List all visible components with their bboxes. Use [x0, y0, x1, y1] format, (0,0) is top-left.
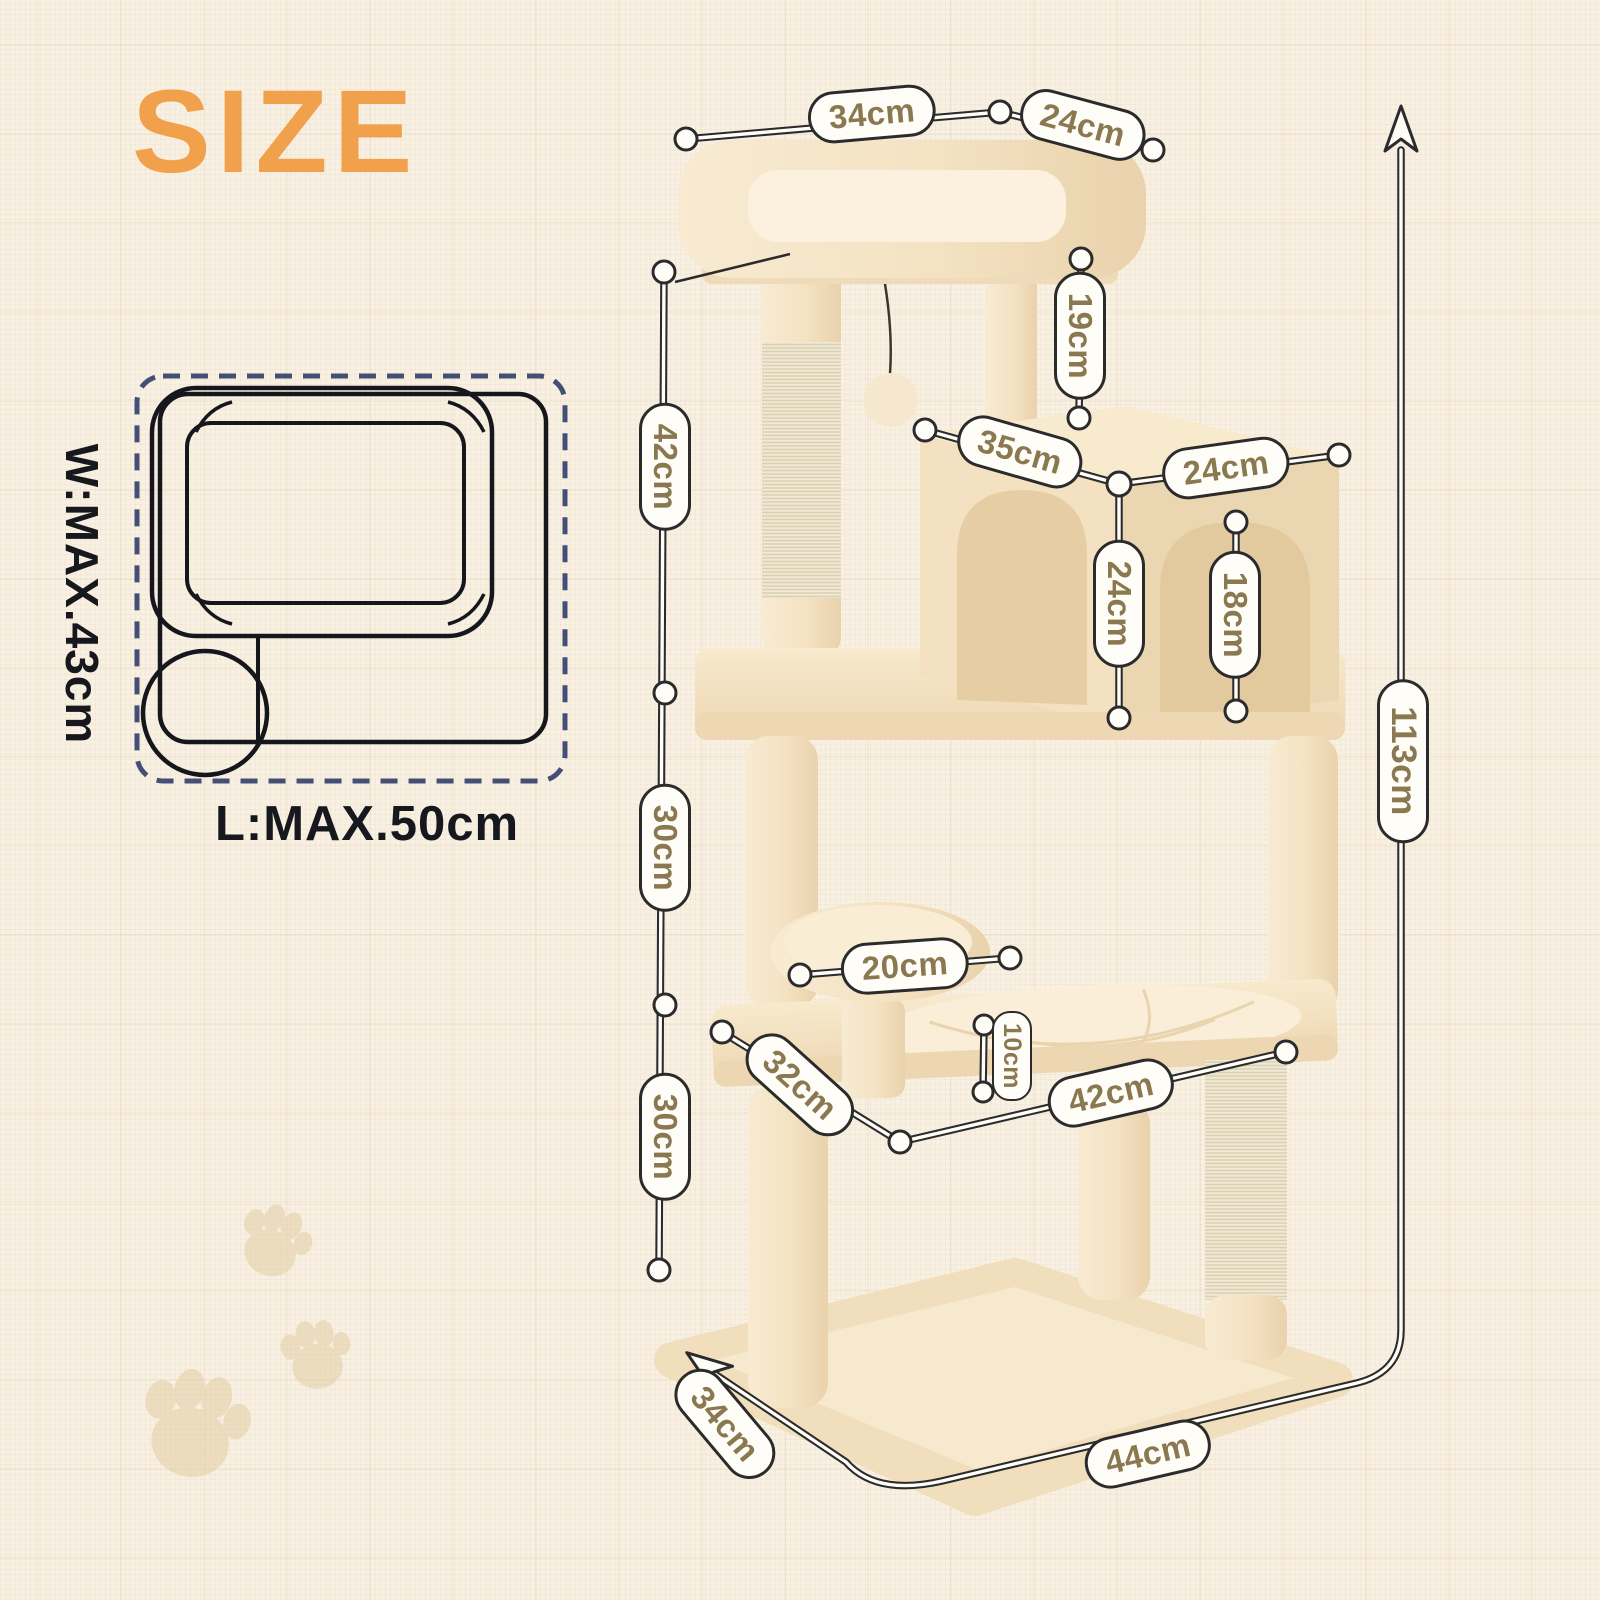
dim-lower-section-height: 30cm [639, 1073, 691, 1201]
dim-perch-diameter: 20cm [839, 936, 971, 997]
page-title: SIZE [132, 64, 418, 200]
bottom-middle-post [1078, 1100, 1150, 1300]
bottom-sisal-post [1205, 1060, 1287, 1360]
arrow-up-icon [1385, 106, 1417, 151]
dim-top-post-height: 19cm [1054, 272, 1106, 400]
dim-condo-door-height: 18cm [1209, 551, 1261, 679]
toy-string [884, 278, 891, 374]
dim-total-height: 113cm [1377, 679, 1429, 843]
dashed-boundary [137, 376, 565, 781]
condo-front-door [957, 490, 1087, 705]
platform-outline [160, 394, 546, 742]
scratching-post [762, 258, 841, 662]
stool-post [842, 998, 905, 1098]
dim-condo-height: 24cm [1093, 540, 1145, 668]
bed-footprint-diagram [137, 376, 565, 781]
paw-print-icon [129, 1195, 354, 1489]
size-infographic: SIZE [0, 0, 1600, 1600]
middle-platform-lip [695, 712, 1345, 740]
bed-length-label: L:MAX.50cm [215, 796, 519, 852]
mid-right-post [1268, 736, 1338, 1014]
top-right-post [985, 258, 1037, 438]
bed-width-label: W:MAX.43cm [55, 444, 109, 745]
bolster-corner-marks [196, 402, 484, 624]
cat-tree-illustration [672, 140, 1345, 1498]
dim-middle-section-height: 30cm [639, 784, 691, 912]
bed-inner-outline [187, 423, 464, 603]
pompom-ball [864, 373, 918, 427]
dim-perch-post-height: 10cm [992, 1011, 1032, 1101]
dim-upper-post-height: 42cm [639, 403, 691, 531]
